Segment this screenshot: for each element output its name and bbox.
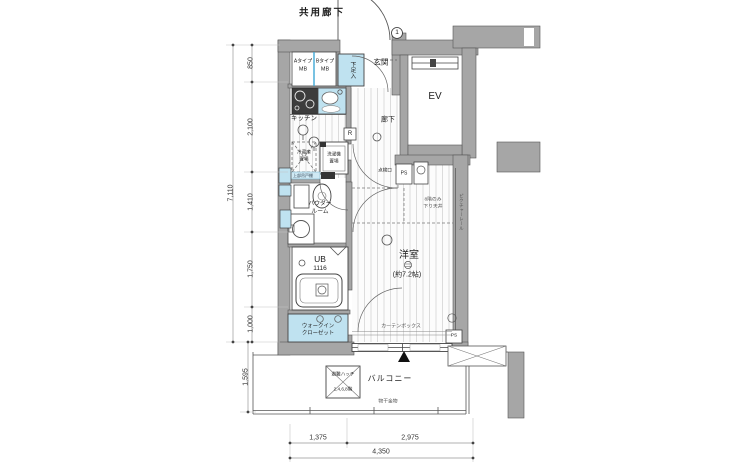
entrance-label: 玄関 <box>374 58 389 66</box>
ub-size-label: 1116 <box>313 266 327 273</box>
ev-label: EV <box>428 92 441 102</box>
western-room-label: 洋室 <box>399 251 419 261</box>
range-hood-label: R <box>348 131 352 137</box>
dim-1000: 1,000 <box>248 315 255 333</box>
inspection-port-label: 点検口 <box>378 169 392 174</box>
picture-rail-label: ピクチャーレール <box>459 194 464 231</box>
wall-right-chunk <box>497 142 540 172</box>
wall-notch <box>524 28 534 46</box>
bathtub-icon <box>296 274 342 307</box>
western-room-size-label: (約7.2帖) <box>393 272 421 279</box>
wic-label-1: ウォークイン <box>302 324 334 329</box>
dim-2100: 2,100 <box>248 118 255 136</box>
wall-bottom-left <box>278 342 354 355</box>
mb-a-label: MB <box>299 67 307 73</box>
window-tag <box>410 345 440 351</box>
mb-a-type: Aタイプ <box>294 60 312 65</box>
powder-room-label-1: パウダー <box>308 202 331 208</box>
wall-ev-right <box>462 48 476 158</box>
floor-plan: 共用廊下 Aタイプ MB Bタイプ MB 下足入 玄関 1 EV キッチン 廊下… <box>0 0 730 470</box>
lowered-ceiling-label-2: 下り天井 <box>423 206 442 211</box>
wall-top-left <box>278 40 340 52</box>
mb-b-label: MB <box>321 67 329 73</box>
entrance-door-swing <box>338 0 390 40</box>
dim-1375: 1,375 <box>309 435 327 442</box>
dim-7110: 7,110 <box>228 185 235 202</box>
fridge-label-2: 置場 <box>299 158 308 163</box>
washbasin-icon <box>288 214 314 244</box>
wic-label-2: クローゼット <box>302 331 334 336</box>
ps-bottom-label: PS <box>451 334 457 339</box>
lowered-ceiling-label-1: 8階のみ <box>424 199 441 204</box>
door-number-label: 1 <box>395 30 399 37</box>
floor-plan-drawing <box>0 0 730 470</box>
washer-label-2: 置場 <box>329 160 338 165</box>
mb-b-type: Bタイプ <box>316 60 334 65</box>
hallway-label: 廊下 <box>381 117 395 124</box>
curtain-box-label: カーテンボックス <box>381 325 421 330</box>
dim-2975: 2,975 <box>401 435 419 442</box>
water-heater-tag <box>322 106 340 113</box>
dim-1595: 1,595 <box>243 368 250 386</box>
powder-room-label-2: ルーム <box>311 210 328 216</box>
black-bar <box>321 172 335 179</box>
escape-hatch-label-2: 2,4,6,8階 <box>334 388 353 393</box>
dim-850: 850 <box>248 57 255 69</box>
entry-triangle-marker <box>398 351 410 362</box>
escape-hatch-label-1: 避難ハッチ <box>332 373 355 378</box>
neighbor-hatch-box <box>448 346 506 366</box>
elevator-door-icon <box>412 57 458 69</box>
window-tag <box>358 345 388 351</box>
dim-1750: 1,750 <box>248 260 255 278</box>
ub-label: UB <box>314 255 326 264</box>
stove-icon <box>292 88 318 114</box>
ps-top-label: PS <box>401 172 408 177</box>
water-heater-icon <box>414 162 428 184</box>
dim-1410: 1,410 <box>248 193 255 211</box>
balcony-label: バルコニー <box>368 375 413 383</box>
shoe-box-label: 下足入 <box>348 61 354 78</box>
sink-icon <box>318 88 346 114</box>
laundry-bracket-label: 物干金物 <box>378 401 397 406</box>
fridge-label-1: 冷蔵庫 <box>297 151 311 156</box>
common-corridor-label: 共用廊下 <box>299 8 345 18</box>
wall-pillar <box>508 352 524 418</box>
sliding-window <box>352 344 452 352</box>
dim-4350: 4,350 <box>372 449 390 456</box>
wall-ev-left <box>400 55 408 158</box>
washer-label-1: 洗濯機 <box>327 153 341 158</box>
kitchen-label: キッチン <box>291 116 317 123</box>
upper-cabinet-label: 上部吊戸棚 <box>293 174 313 178</box>
partition <box>288 310 350 314</box>
